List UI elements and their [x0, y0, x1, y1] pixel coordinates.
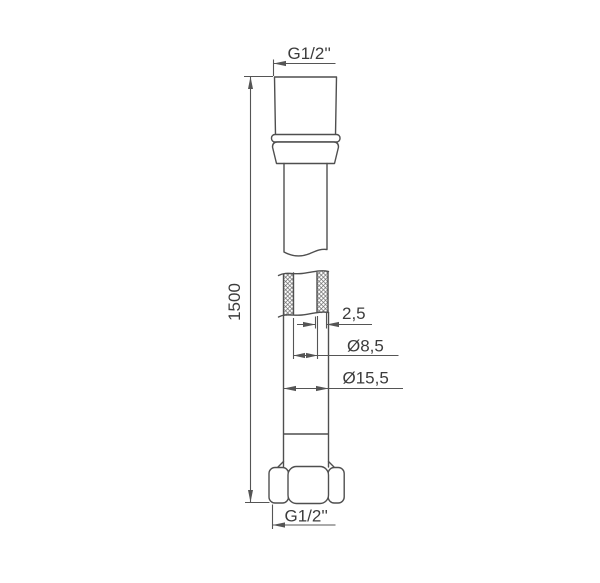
label-length: 1500 [225, 283, 244, 321]
arrow-right-icon [306, 353, 318, 358]
ferrule [273, 142, 339, 164]
arrow-left-icon [273, 522, 286, 527]
arrow-left-icon [274, 61, 287, 66]
hose-cross-section [279, 271, 329, 317]
cone-fitting [275, 77, 337, 135]
arrow-right-icon [316, 386, 329, 391]
arrow-right-icon [303, 322, 316, 327]
dim-length: 1500 [225, 77, 273, 503]
dim-length-lines [244, 77, 273, 503]
section-wall-right-hatch [317, 271, 328, 313]
label-inner-diameter: Ø8,5 [347, 337, 384, 356]
nut-lobe-left [269, 468, 289, 504]
label-bottom-thread: G1/2'' [285, 507, 328, 526]
label-top-thread: G1/2'' [288, 44, 331, 63]
dim-bottom-thread: G1/2'' [273, 505, 336, 530]
dim-outer-diameter: Ø15,5 [284, 369, 404, 392]
arrow-up-icon [248, 77, 253, 90]
label-wall-thickness: 2,5 [342, 304, 366, 323]
arrow-left-icon [284, 386, 297, 391]
arrow-left-icon [294, 353, 306, 358]
label-outer-diameter: Ø15,5 [343, 369, 389, 388]
hose-body [269, 77, 344, 504]
collar-ring [272, 135, 341, 143]
nut-lobe-right [328, 468, 344, 504]
nut-lobe-middle [288, 467, 329, 504]
shower-hose-diagram: G1/2'' 1500 2,5 Ø8,5 Ø15,5 G1/2'' [0, 0, 600, 583]
technical-drawing-page: G1/2'' 1500 2,5 Ø8,5 Ø15,5 G1/2'' [0, 0, 600, 583]
dim-wall-thickness: 2,5 [297, 304, 372, 329]
dim-top-thread: G1/2'' [274, 44, 336, 76]
arrow-down-icon [248, 490, 253, 503]
section-wall-left-hatch [284, 273, 294, 316]
hex-nut [269, 467, 344, 504]
hose-tube-upper [284, 164, 327, 256]
